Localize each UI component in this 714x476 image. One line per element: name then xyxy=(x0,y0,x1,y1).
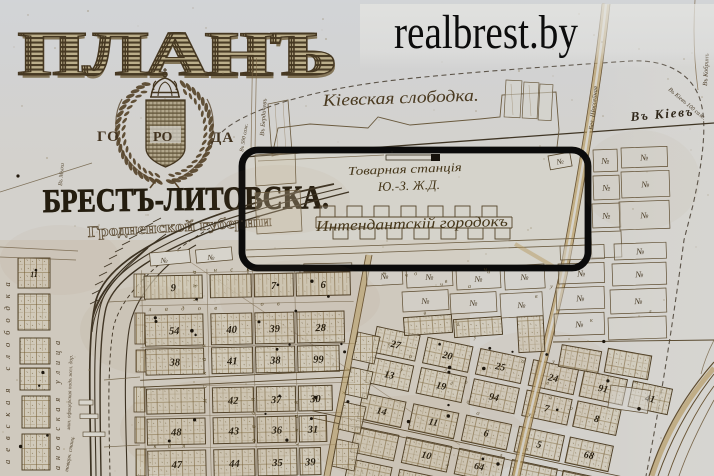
svg-text:20: 20 xyxy=(440,350,453,363)
svg-text:Ю.-З. Ж.Д.: Ю.-З. Ж.Д. xyxy=(377,177,440,194)
svg-text:к: к xyxy=(590,318,593,324)
svg-text:№: № xyxy=(473,274,483,284)
svg-text:ч: ч xyxy=(635,380,638,386)
svg-text:39: 39 xyxy=(304,457,316,468)
svg-text:99: 99 xyxy=(313,354,324,365)
svg-text:ч: ч xyxy=(405,273,408,279)
svg-text:№: № xyxy=(420,296,430,306)
svg-text:№: № xyxy=(634,269,643,279)
svg-text:40: 40 xyxy=(225,325,237,336)
svg-text:30: 30 xyxy=(309,394,321,405)
svg-text:№: № xyxy=(468,298,478,308)
svg-text:а: а xyxy=(468,284,471,290)
svg-text:№: № xyxy=(424,272,434,282)
svg-text:realbrest.by: realbrest.by xyxy=(394,6,578,59)
svg-text:РО: РО xyxy=(153,130,172,145)
svg-text:о: о xyxy=(409,354,412,360)
svg-text:ДА: ДА xyxy=(211,130,234,146)
svg-text:№: № xyxy=(516,300,526,310)
svg-text:ч: ч xyxy=(440,282,443,288)
svg-text:ПЛАНЪ: ПЛАНЪ xyxy=(22,18,338,89)
svg-text:№: № xyxy=(575,293,584,303)
svg-text:л: л xyxy=(648,309,652,315)
svg-text:№: № xyxy=(555,156,565,166)
svg-text:№: № xyxy=(519,272,529,282)
svg-text:38: 38 xyxy=(269,355,281,366)
svg-text:№: № xyxy=(635,246,644,256)
svg-text:№: № xyxy=(574,319,583,329)
svg-text:№: № xyxy=(160,256,168,265)
svg-text:41: 41 xyxy=(226,356,238,367)
svg-text:№: № xyxy=(207,253,215,262)
svg-text:о: о xyxy=(570,406,574,412)
svg-text:ГО: ГО xyxy=(97,129,120,145)
svg-text:ановская улица: ановская улица xyxy=(53,335,62,470)
svg-text:аевская слободка: аевская слободка xyxy=(2,274,12,464)
svg-text:№: № xyxy=(633,296,642,306)
